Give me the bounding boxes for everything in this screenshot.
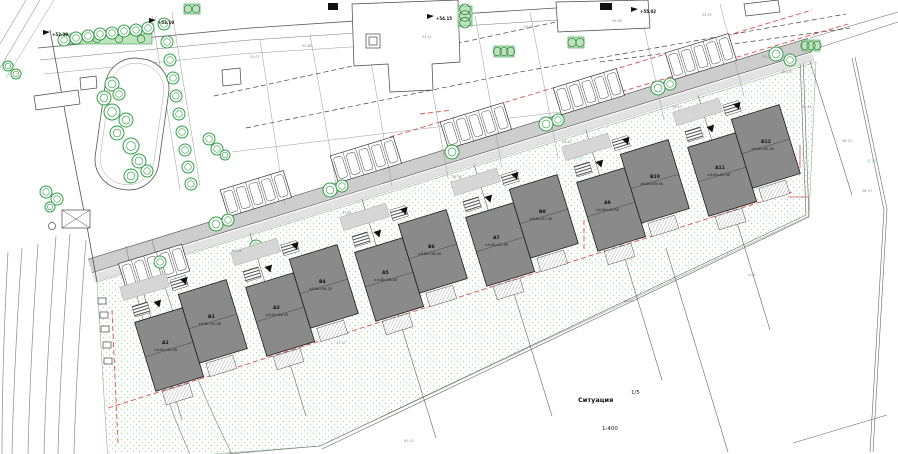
tree-icon — [445, 145, 459, 159]
building-elevation-a5: ±0.00=56.00 — [374, 278, 397, 282]
building-elevation-b4: ±0.00=54.20 — [309, 287, 332, 291]
building-elevation-b2: ±0.00=52.30 — [198, 322, 221, 326]
tree-icon — [97, 91, 111, 105]
tree-icon — [164, 54, 176, 66]
building-elevation-a1: ±0.00=52.30 — [154, 348, 177, 352]
tree-icon — [3, 61, 13, 71]
building-label-a9: A9 — [604, 200, 611, 206]
tree-icon — [664, 78, 676, 90]
level-label: -0.75 — [572, 156, 583, 161]
building-label-a5: A5 — [382, 270, 389, 276]
tree-icon — [220, 150, 230, 160]
street-elevation-label: +53.19 — [158, 20, 174, 25]
building-elevation-b12: ±0.00=61.00 — [751, 147, 774, 151]
hedge-strip — [568, 37, 584, 48]
spot-elevation: 58.36 — [452, 175, 462, 179]
tree-icon — [45, 202, 55, 212]
spot-elevation: 57.81 — [342, 211, 352, 215]
street-elevation-label: +55.02 — [640, 9, 656, 14]
spot-elevation: 59.47 — [672, 105, 682, 109]
tree-icon — [336, 180, 348, 192]
sheet-titleblock: Ситуация 1/5 1:400 — [578, 390, 640, 432]
tree-icon — [222, 214, 234, 226]
spot-elevation: 55.02 — [762, 55, 772, 59]
building-label-b6: B6 — [428, 244, 435, 250]
tree-icon — [110, 126, 124, 140]
spot-elevation: 53.11 — [422, 35, 432, 39]
building-elevation-b8: ±0.00=57.50 — [529, 217, 552, 221]
manhole-icon — [49, 223, 56, 230]
tree-icon — [104, 104, 120, 120]
street-elevation-label: +54.15 — [436, 16, 452, 21]
tree-icon — [142, 22, 154, 34]
spot-elevation: 58.92 — [562, 140, 572, 144]
tree-icon — [130, 24, 142, 36]
hedge-strip — [458, 4, 472, 28]
spot-elevation: 4.00 — [748, 273, 756, 277]
tree-icon — [651, 81, 665, 95]
tree-icon — [154, 256, 166, 268]
tree-icon — [552, 114, 564, 126]
spot-elevation: 17.27 — [336, 341, 346, 345]
tree-icon — [209, 217, 223, 231]
building-label-b12: B12 — [761, 139, 771, 145]
building-elevation-b10: ±0.00=59.50 — [640, 182, 663, 186]
level-label: -0.75 — [866, 159, 877, 164]
spot-elevation: 57.24 — [232, 249, 242, 253]
tree-icon — [179, 144, 191, 156]
building-label-b2: B2 — [208, 314, 215, 320]
building-label-b10: B10 — [650, 174, 660, 180]
tree-icon — [40, 186, 52, 198]
building-label-b4: B4 — [319, 279, 326, 285]
sheet-scale: 1:400 — [602, 426, 618, 432]
spot-elevation: 55.48 — [802, 105, 812, 109]
sheet-title: Ситуация — [578, 396, 613, 404]
spot-elevation: 61.15 — [404, 439, 414, 443]
tree-icon — [170, 90, 182, 102]
hedge-strip — [801, 40, 821, 51]
spot-elevation: 56.70 — [862, 189, 872, 193]
building-label-a11: A11 — [715, 165, 725, 171]
building-label-a1: A1 — [162, 340, 169, 346]
tree-icon — [176, 126, 188, 138]
elevation-tick-icon — [43, 30, 50, 35]
tree-icon — [323, 183, 337, 197]
spot-elevation: 53.62 — [524, 25, 534, 29]
site-plan-drawing: A1 ±0.00=52.30 B2 ±0.00=52.30 A3 ±0.00=5… — [0, 0, 898, 454]
tree-icon — [11, 69, 21, 79]
site-boundary — [50, 30, 97, 282]
tree-icon — [106, 27, 118, 39]
tree-icon — [185, 178, 197, 190]
tree-icon — [94, 28, 106, 40]
sheet-number: 1/5 — [631, 390, 640, 396]
tree-icon — [784, 54, 796, 66]
hedge-strip — [184, 4, 200, 14]
street-elevation-label: +52.30 — [52, 32, 68, 37]
tree-icon — [167, 72, 179, 84]
building-label-b8: B8 — [539, 209, 546, 215]
spot-elevation: 54.55 — [702, 13, 712, 17]
tree-icon — [161, 36, 173, 48]
site-plan-sheet: A1 ±0.00=52.30 B2 ±0.00=52.30 A3 ±0.00=5… — [0, 0, 898, 454]
hedge-strip — [493, 46, 515, 57]
spot-elevation: 56.40 — [624, 299, 634, 303]
tree-icon — [113, 88, 125, 100]
tree-icon — [118, 25, 130, 37]
building-label-a7: A7 — [493, 235, 500, 241]
tree-icon — [182, 161, 194, 173]
building-elevation-a9: ±0.00=59.50 — [596, 208, 619, 212]
spot-elevation: 60.03 — [782, 70, 792, 74]
spot-elevation: 52.84 — [302, 44, 312, 48]
tree-icon — [70, 32, 82, 44]
building-elevation-a7: ±0.00=57.50 — [485, 243, 508, 247]
spot-elevation: 54.08 — [612, 19, 622, 23]
tree-icon — [123, 138, 139, 154]
tree-icon — [119, 113, 133, 127]
tree-icon — [124, 169, 138, 183]
tree-icon — [203, 133, 215, 145]
tree-icon — [141, 165, 153, 177]
tree-icon — [173, 108, 185, 120]
building-elevation-b6: ±0.00=56.00 — [418, 252, 441, 256]
building-label-a3: A3 — [273, 305, 280, 311]
tree-icon — [539, 117, 553, 131]
tree-icon — [82, 30, 94, 42]
spot-elevation: 56.13 — [842, 139, 852, 143]
spot-elevation: 52.07 — [250, 55, 260, 59]
building-elevation-a11: ±0.00=61.00 — [707, 173, 730, 177]
building-elevation-a3: ±0.00=54.20 — [265, 313, 288, 317]
